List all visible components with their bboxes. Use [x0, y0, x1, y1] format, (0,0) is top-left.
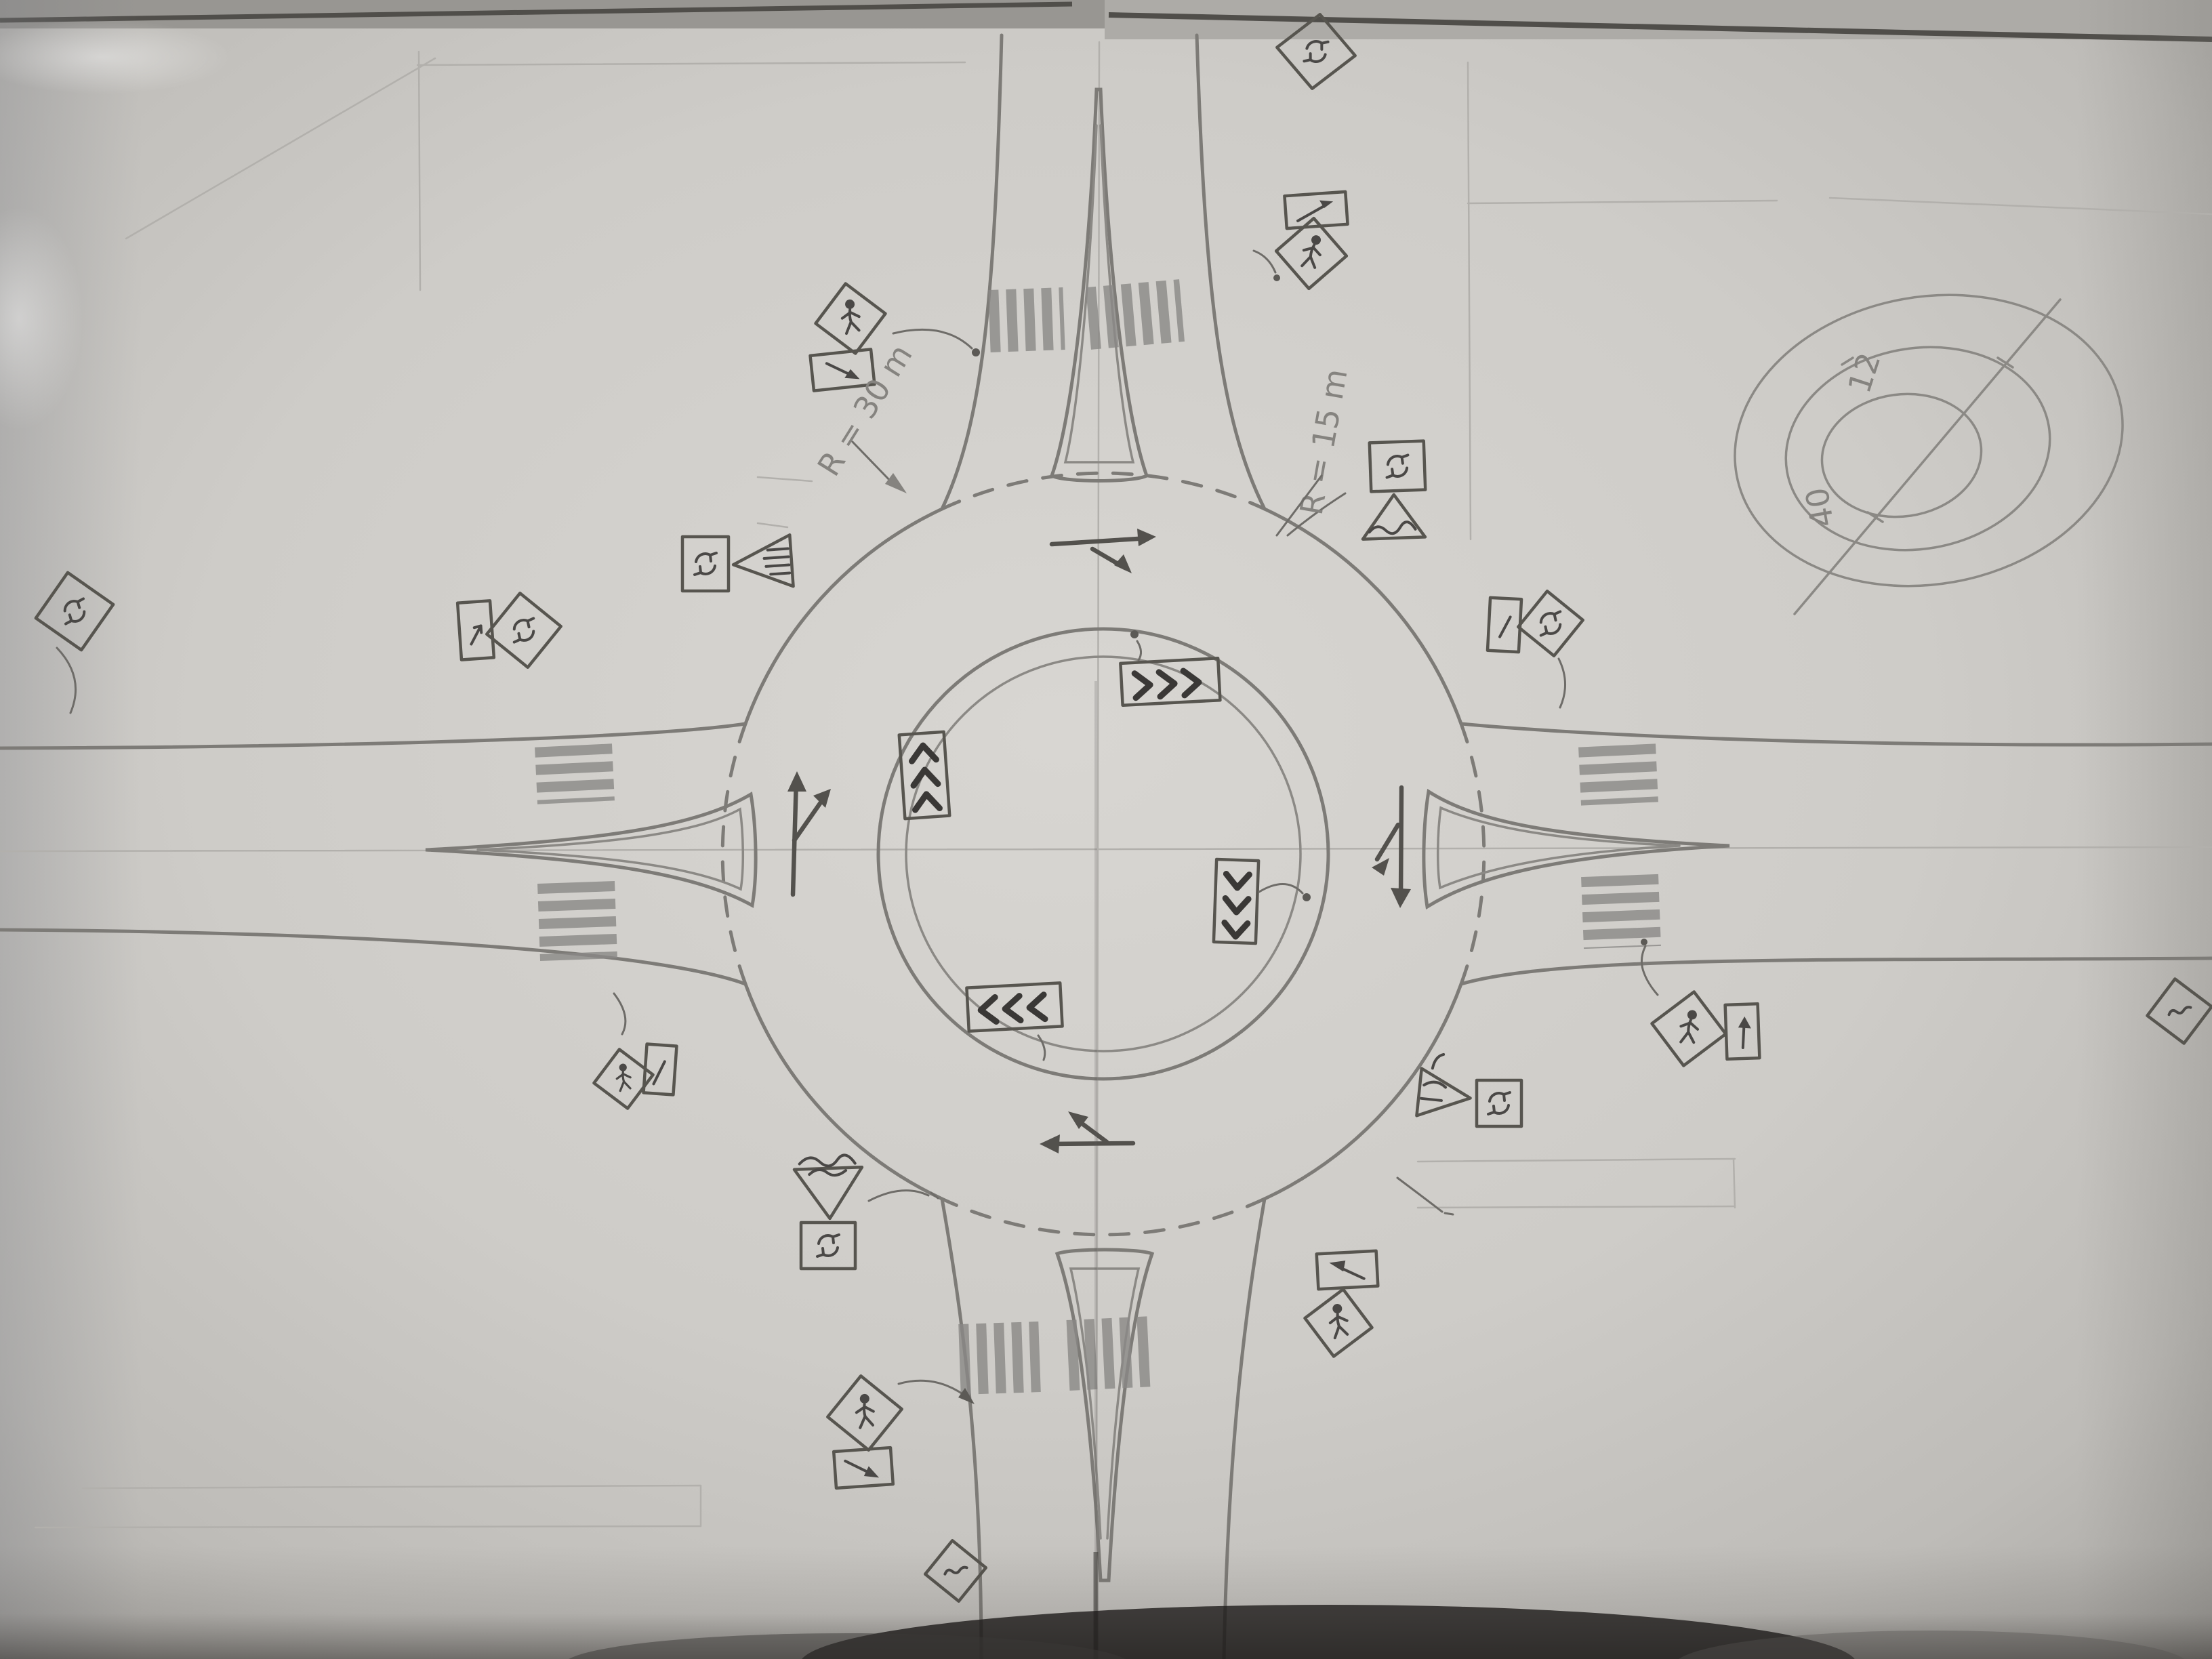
photo-of-sketch: R = 30 m R = 15 m 12 40 — [0, 0, 2212, 1659]
svg-text:40: 40 — [1798, 485, 1841, 530]
photo-background — [0, 0, 2212, 1659]
paper-sheet — [0, 0, 2212, 1659]
